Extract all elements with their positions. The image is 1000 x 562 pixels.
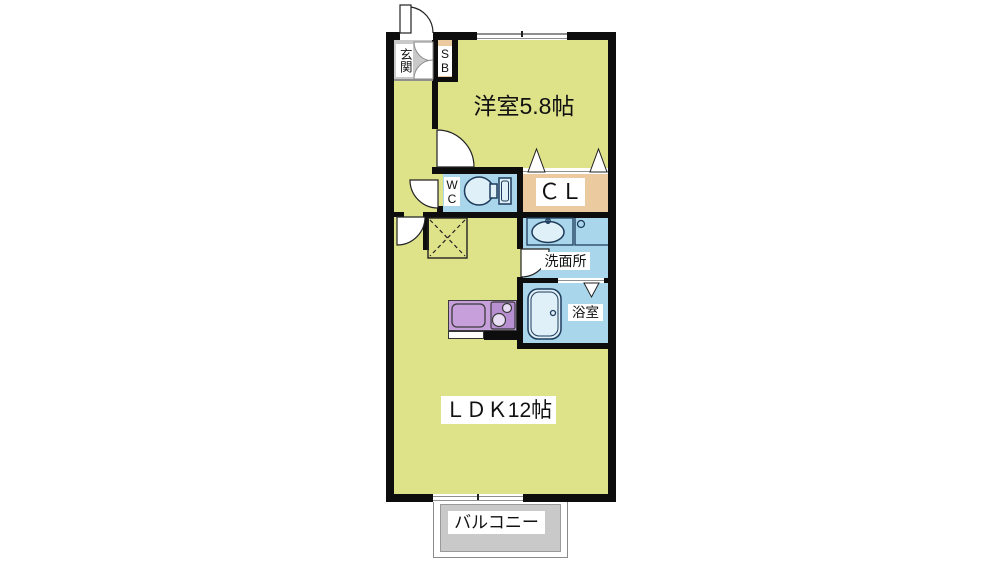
wc-label: WC xyxy=(444,177,460,206)
kitchen-counter xyxy=(448,300,517,331)
sliding-window-icon xyxy=(477,31,567,40)
wall xyxy=(517,277,523,348)
kitchen-counter-front xyxy=(448,331,484,339)
wall xyxy=(452,40,458,82)
entrance-door-icon xyxy=(400,5,433,33)
floor-plan: 玄関 SB 洋室5.8帖 WC ＣＬ 洗面所 浴室 ＬＤＫ12帖 バルコニー xyxy=(0,0,1000,562)
bathroom-label: 浴室 xyxy=(568,304,603,321)
wall xyxy=(517,278,558,283)
wall xyxy=(394,212,404,217)
wall xyxy=(517,343,608,349)
wall xyxy=(432,82,438,129)
ldk-label: ＬＤＫ12帖 xyxy=(441,396,556,424)
shoe-box-label: SB xyxy=(438,46,452,76)
wall xyxy=(608,32,616,502)
entrance-step-line xyxy=(394,79,433,81)
wall xyxy=(386,32,394,502)
closet-door-opening xyxy=(523,168,608,174)
wall xyxy=(517,218,523,249)
western-room-label: 洋室5.8帖 xyxy=(454,93,594,120)
wall xyxy=(604,278,608,283)
wall xyxy=(423,212,429,250)
sliding-window-icon xyxy=(433,494,523,502)
wall xyxy=(484,331,517,340)
closet-label: ＣＬ xyxy=(536,178,585,206)
wall xyxy=(432,167,523,174)
washroom-label: 洗面所 xyxy=(541,252,590,270)
bath-door-opening xyxy=(558,278,604,283)
balcony-label: バルコニー xyxy=(448,511,545,534)
entrance-opening xyxy=(400,32,433,40)
entrance-label: 玄関 xyxy=(396,44,413,77)
